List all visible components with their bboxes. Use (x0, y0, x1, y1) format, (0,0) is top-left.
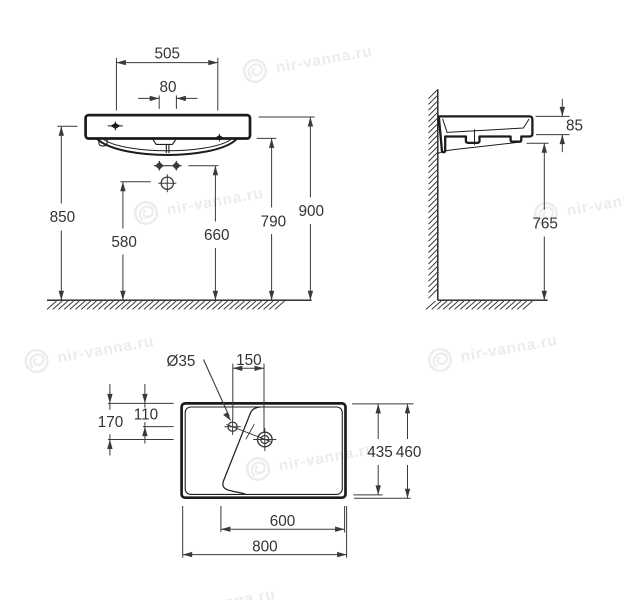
svg-text:505: 505 (155, 46, 181, 63)
svg-text:Ø35: Ø35 (167, 353, 196, 370)
svg-text:580: 580 (111, 234, 137, 251)
svg-text:765: 765 (532, 216, 558, 233)
svg-text:900: 900 (299, 203, 325, 220)
svg-text:790: 790 (261, 213, 287, 230)
svg-text:110: 110 (134, 407, 158, 424)
svg-text:460: 460 (396, 444, 422, 461)
svg-text:150: 150 (236, 352, 262, 369)
svg-text:80: 80 (159, 79, 176, 96)
svg-text:600: 600 (270, 513, 296, 530)
svg-text:85: 85 (566, 118, 583, 135)
svg-text:435: 435 (367, 444, 393, 461)
svg-text:170: 170 (98, 414, 124, 431)
svg-text:850: 850 (50, 209, 76, 226)
svg-text:660: 660 (204, 227, 230, 244)
svg-text:800: 800 (252, 538, 278, 555)
